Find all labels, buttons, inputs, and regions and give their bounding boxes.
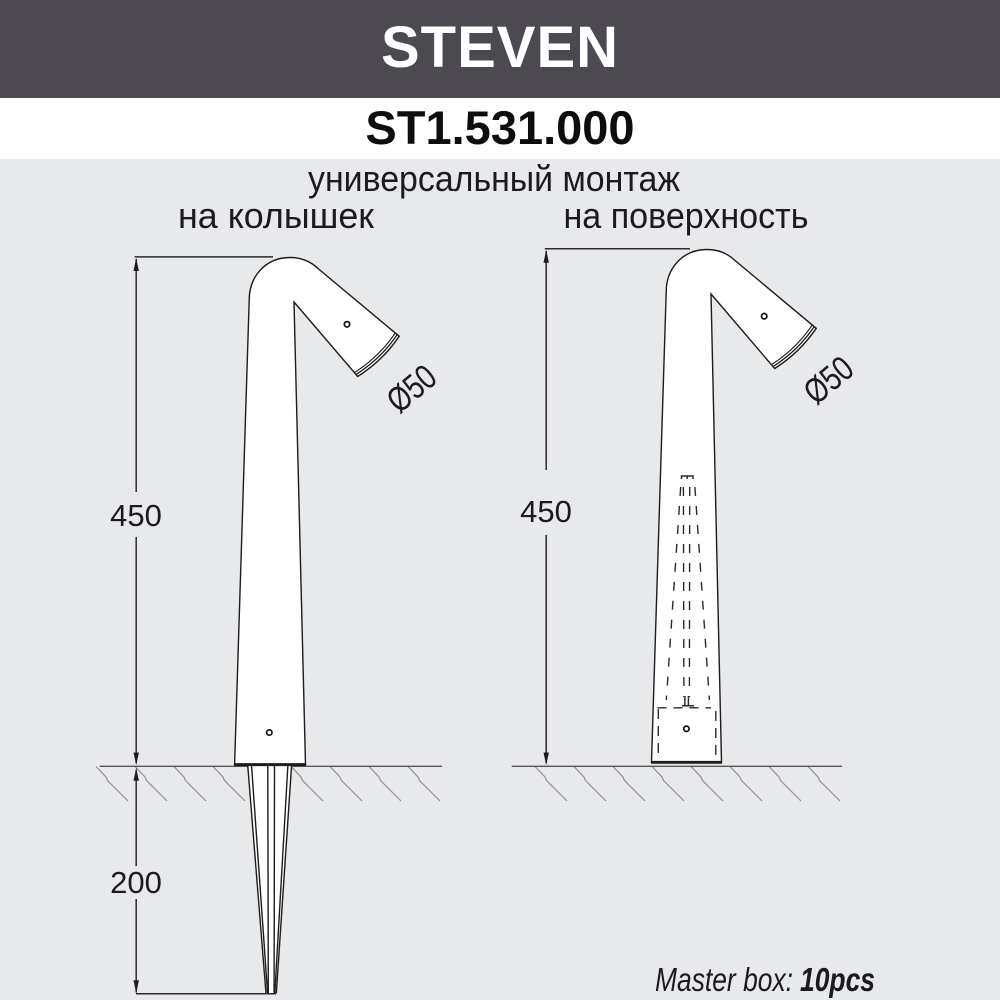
svg-text:450: 450 (520, 494, 572, 529)
svg-text:Ø50: Ø50 (379, 357, 444, 420)
svg-text:10pcs: 10pcs (800, 961, 875, 998)
svg-text:200: 200 (110, 865, 162, 900)
svg-text:на поверхность: на поверхность (564, 195, 809, 236)
svg-text:Master box:: Master box: (655, 961, 793, 998)
svg-text:450: 450 (110, 498, 162, 533)
svg-text:Ø50: Ø50 (796, 349, 861, 412)
svg-text:универсальный монтаж: универсальный монтаж (308, 159, 680, 199)
svg-text:на колышек: на колышек (178, 195, 374, 236)
